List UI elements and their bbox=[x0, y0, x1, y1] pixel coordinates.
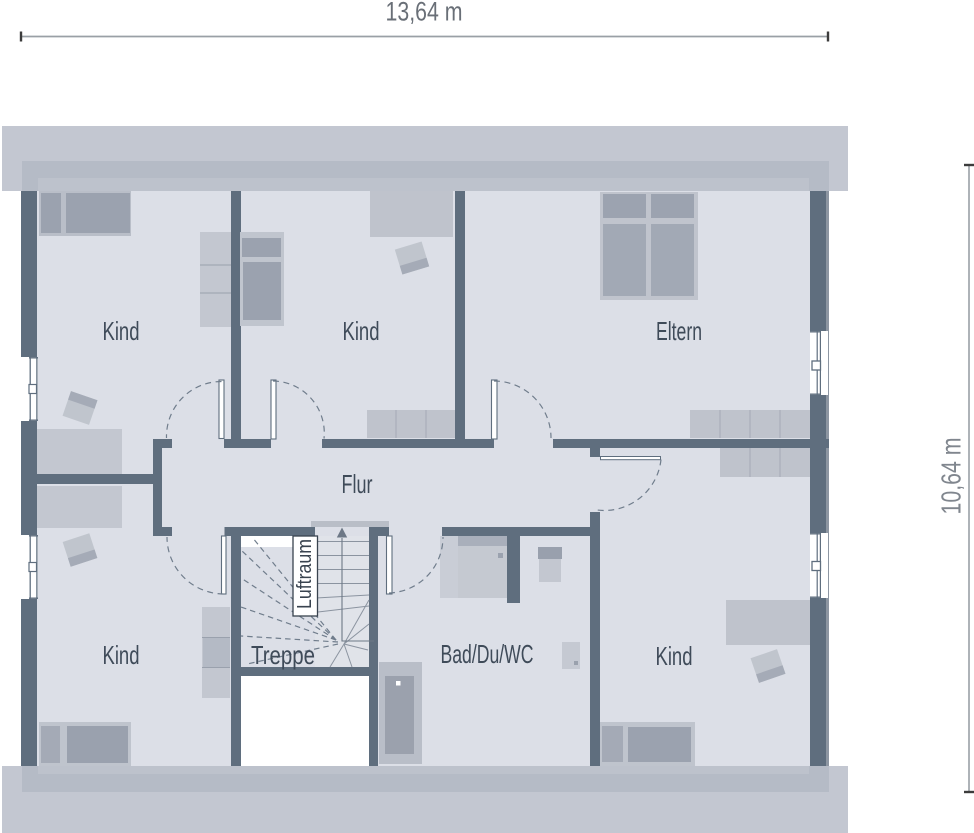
svg-text:Eltern: Eltern bbox=[656, 316, 702, 346]
svg-text:13,64 m: 13,64 m bbox=[386, 0, 463, 27]
svg-text:Luftraum: Luftraum bbox=[294, 539, 316, 609]
svg-text:10,64 m: 10,64 m bbox=[936, 438, 967, 515]
svg-text:Kind: Kind bbox=[103, 316, 140, 346]
svg-text:Kind: Kind bbox=[103, 640, 140, 670]
svg-text:Kind: Kind bbox=[656, 641, 693, 671]
svg-text:Bad/Du/WC: Bad/Du/WC bbox=[441, 639, 534, 669]
svg-text:Treppe: Treppe bbox=[251, 640, 315, 670]
svg-text:Flur: Flur bbox=[342, 469, 373, 499]
svg-text:Kind: Kind bbox=[343, 316, 380, 346]
